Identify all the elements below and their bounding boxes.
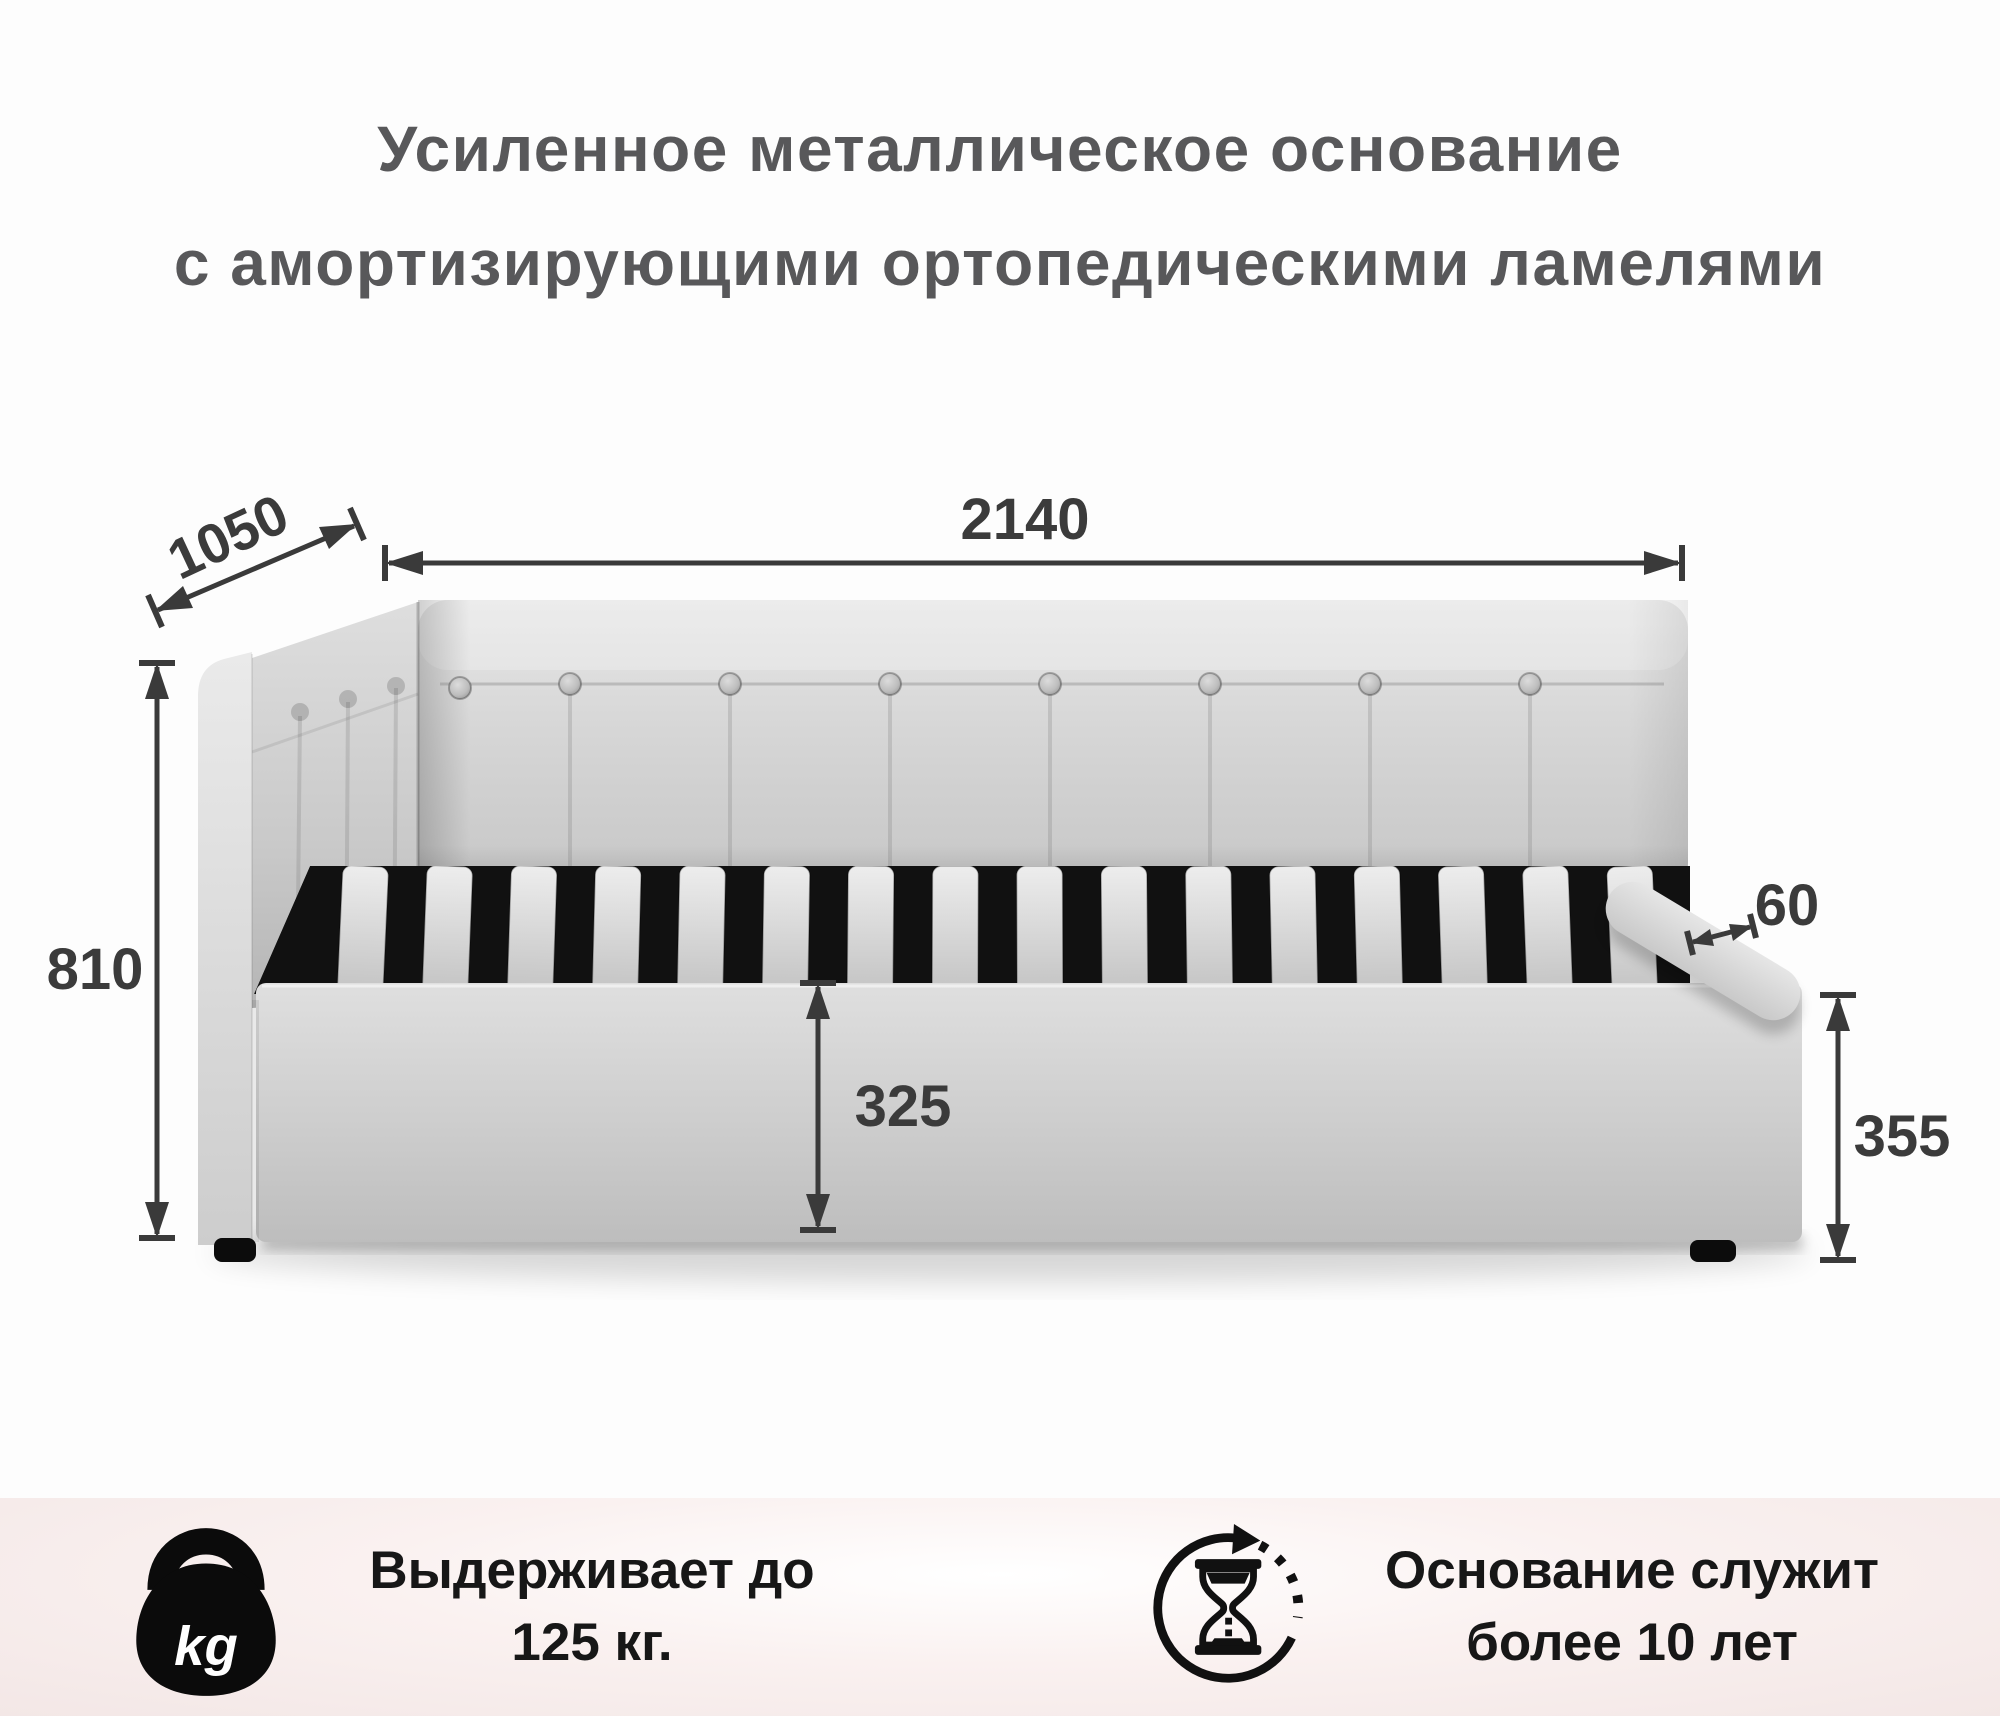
slat xyxy=(592,865,641,994)
hourglass xyxy=(1195,1559,1261,1655)
slat xyxy=(1522,865,1573,995)
slat xyxy=(422,865,473,995)
feature-durability-line-2: более 10 лет xyxy=(1352,1607,1912,1679)
hourglass-cycle-icon xyxy=(1150,1522,1316,1692)
tuft-button xyxy=(879,673,901,695)
slat-platform xyxy=(254,865,1690,995)
tuft-button xyxy=(291,703,309,721)
base-left-seam xyxy=(252,1000,259,1242)
slat xyxy=(1438,865,1488,994)
slat xyxy=(847,866,894,994)
feature-weight-text: Выдерживает до 125 кг. xyxy=(332,1535,852,1679)
headboard-front-edge xyxy=(198,652,252,1245)
dimension-arrow-side-height xyxy=(1820,995,1856,1260)
slat xyxy=(932,866,978,994)
tuft-button xyxy=(449,677,471,699)
slat xyxy=(677,866,726,995)
tuft-button xyxy=(1519,673,1541,695)
dimension-label-side-height: 355 xyxy=(1854,1108,1951,1166)
tuft-button xyxy=(339,690,357,708)
slat xyxy=(1185,866,1233,995)
bed-foot-right xyxy=(1690,1240,1736,1262)
tuft-button xyxy=(1199,673,1221,695)
tuft-button xyxy=(719,673,741,695)
cycle-arc-dotted xyxy=(1260,1545,1298,1617)
bed-foot-left xyxy=(214,1238,256,1262)
bed-illustration xyxy=(0,0,2000,1716)
kettlebell-kg-icon: kg xyxy=(120,1511,292,1703)
slat xyxy=(337,865,389,995)
feature-weight-capacity: kg Выдерживает до 125 кг. xyxy=(120,1498,890,1716)
dimension-label-height: 810 xyxy=(47,941,144,999)
feature-durability: Основание служит более 10 лет xyxy=(1150,1498,1930,1716)
slat xyxy=(1269,866,1318,995)
feature-weight-line-2: 125 кг. xyxy=(332,1607,852,1679)
feature-weight-line-1: Выдерживает до xyxy=(332,1535,852,1607)
tuft-button xyxy=(1359,673,1381,695)
slat xyxy=(1101,866,1148,994)
back-panel-highlight xyxy=(418,600,1688,670)
back-panel-right-shade xyxy=(1628,600,1688,892)
slat xyxy=(507,865,557,994)
tuft-button xyxy=(387,677,405,695)
feature-durability-line-1: Основание служит xyxy=(1352,1535,1912,1607)
dimension-label-base-height: 325 xyxy=(855,1078,952,1136)
tuft-button xyxy=(559,673,581,695)
corner-shadow xyxy=(418,600,470,892)
tuft-button xyxy=(1039,673,1061,695)
back-panel xyxy=(418,600,1688,892)
slat xyxy=(1017,866,1063,994)
slat xyxy=(762,866,810,995)
kettlebell-kg-label: kg xyxy=(174,1616,238,1677)
dimension-arrow-height xyxy=(139,663,175,1238)
product-infographic: Усиленное металлическое основание с амор… xyxy=(0,0,2000,1716)
dimension-label-slat-width: 60 xyxy=(1755,877,1820,935)
dimension-label-width: 2140 xyxy=(960,491,1089,549)
cycle-arrowhead xyxy=(1232,1524,1260,1554)
bed-base xyxy=(252,983,1802,1242)
feature-durability-text: Основание служит более 10 лет xyxy=(1352,1535,1912,1679)
bed-base-box xyxy=(256,983,1802,1242)
slat xyxy=(1354,865,1403,994)
